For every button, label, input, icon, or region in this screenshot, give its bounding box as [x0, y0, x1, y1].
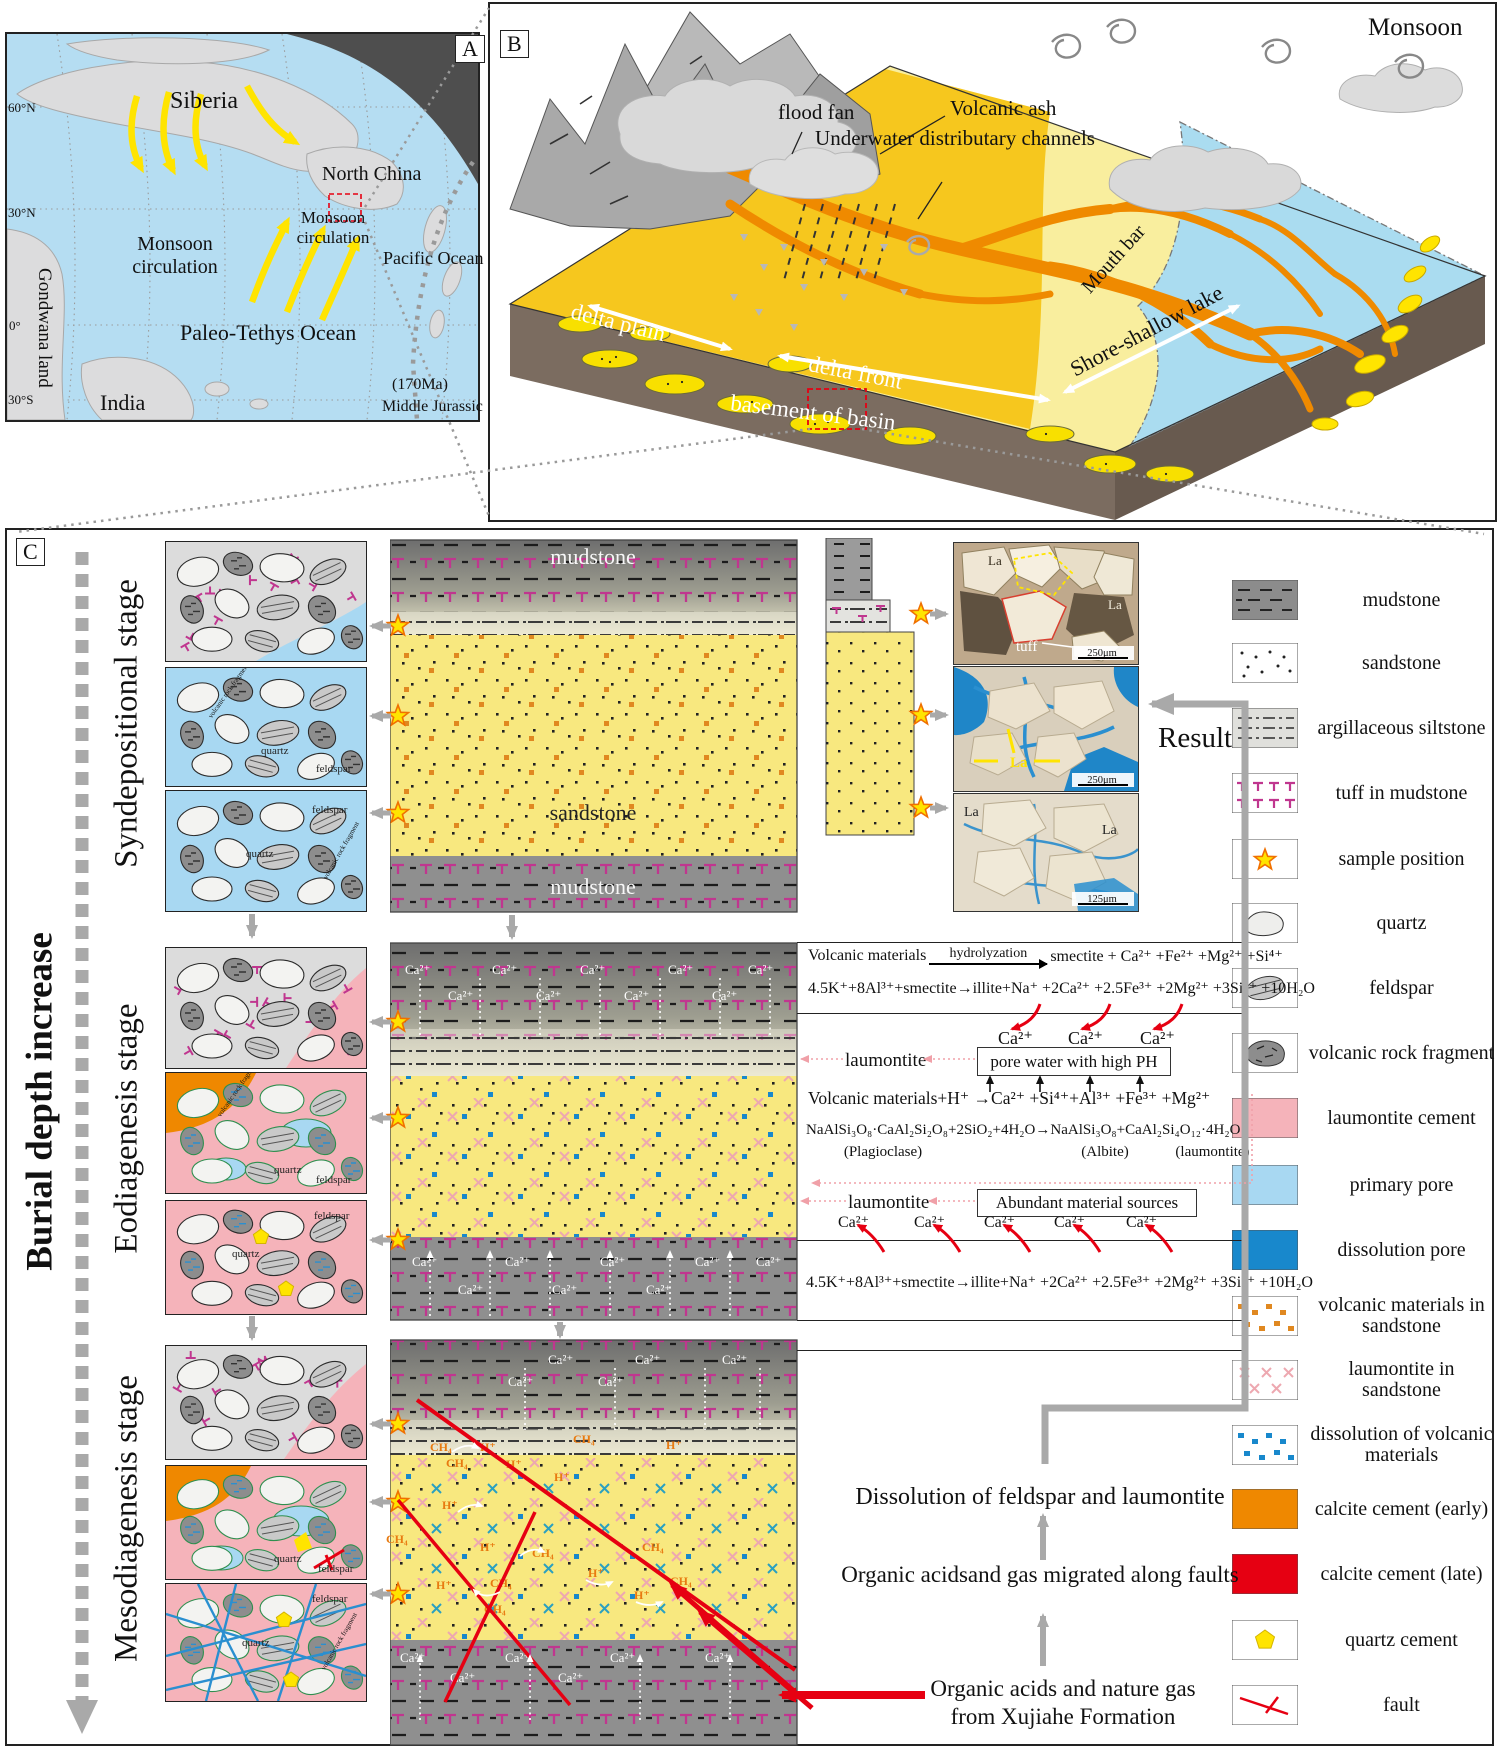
legend-row-dissolution-of-volcanic-materials: dissolution of volcanic materials — [1232, 1422, 1495, 1468]
divider — [797, 1240, 1245, 1241]
column-mesodiagenesis — [390, 1340, 797, 1745]
label-channels: Underwater distributary channels — [800, 126, 1110, 151]
legend-row-sample-position: sample position — [1232, 836, 1495, 882]
label-monsoon: Monsoon — [1368, 14, 1462, 42]
column-reference-small — [826, 538, 914, 835]
panel-b-tag: B — [500, 30, 529, 58]
label-lat-0: 0° — [9, 318, 21, 334]
legend-row-argillaceous-siltstone: argillaceous siltstone — [1232, 705, 1495, 751]
quartz-label: quartz — [261, 745, 289, 757]
label-gondwana: Gondwana land — [33, 268, 55, 388]
label-period: Middle Jurassic — [382, 398, 483, 416]
delta-block-diagram — [490, 4, 1495, 520]
figure-root: A Siberia North China Monsoon circulatio… — [0, 0, 1499, 1748]
feldspar-label: feldspar — [312, 804, 348, 816]
legend-row-laumontite-in-sandstone: laumontite in sandstone — [1232, 1357, 1495, 1403]
quartz-label: quartz — [232, 1248, 260, 1260]
legend-row-primary-pore: primary pore — [1232, 1162, 1495, 1208]
txt-organic-1: Organic acids and nature gas — [898, 1676, 1228, 1702]
eq-illite-1: 4.5K⁺+8Al³⁺+smectite→illite+Na⁺ +2Ca²⁺ +… — [808, 978, 1315, 998]
column-eodiagenesis — [390, 943, 797, 1320]
label-lat-30s: 30°S — [8, 392, 33, 408]
column-syndepositional — [390, 540, 797, 912]
divider — [797, 1320, 1245, 1321]
legend-row-tuff-in-mudstone: tuff in mudstone — [1232, 770, 1495, 816]
col1-mudstone-top: mudstone — [443, 544, 743, 570]
micrograph-syn-2: volcanic rock fragment quartz feldspar — [165, 667, 367, 787]
ca-ion-label: Ca²⁺ — [1054, 1212, 1085, 1232]
photo-laumontite-dissolution: La 250μm — [953, 666, 1139, 792]
micrograph-eo-1 — [165, 947, 367, 1069]
feldspar-label: feldspar — [316, 1174, 352, 1186]
eq-illite-2: 4.5K⁺+8Al³⁺+smectite→illite+Na⁺ +2Ca²⁺ +… — [806, 1272, 1313, 1292]
ca-ion-label: Ca²⁺ — [914, 1212, 945, 1232]
label-volcanic-ash: Volcanic ash — [950, 96, 1056, 121]
divider — [797, 1013, 1245, 1014]
legend-row-sandstone: sandstone — [1232, 640, 1495, 686]
micrograph-meso-2: quartz feldspar — [165, 1465, 367, 1580]
laumontite-label-2: laumontite — [848, 1192, 929, 1214]
micrograph-eo-2: volcanic rock fragment quartz feldspar — [165, 1072, 367, 1194]
panel-a-map — [5, 32, 480, 422]
la-label: La — [1010, 755, 1028, 771]
la-label: La — [1108, 597, 1122, 612]
micrograph-syn-3: feldspar quartz volcanic rock fragment — [165, 790, 367, 912]
legend-row-laumontite-cement: laumontite cement — [1232, 1095, 1495, 1141]
quartz-label: quartz — [274, 1553, 302, 1565]
photo-laumontite-pores: La La 125μm — [953, 793, 1139, 912]
label-monsoon-east: Monsoon circulation — [278, 208, 388, 248]
la-label: La — [1102, 823, 1118, 838]
micrograph-meso-3: feldspar quartz volcanic rock fragment — [165, 1583, 367, 1702]
ca-ion-label: Ca²⁺ — [1140, 1028, 1175, 1049]
ca-ion-label: Ca²⁺ — [1068, 1028, 1103, 1049]
txt-organic-2: from Xujiahe Formation — [898, 1704, 1228, 1730]
label-monsoon-west: Monsoon circulation — [100, 233, 250, 279]
la-label: La — [964, 805, 980, 820]
legend-row-quartz-cement: quartz cement — [1232, 1617, 1495, 1663]
panel-b-block-diagram — [488, 2, 1497, 522]
stage-mesodiagenesis: Mesodiagenesis stage — [109, 1329, 146, 1709]
feldspar-label: feldspar — [318, 1563, 354, 1575]
stage-eodiagenesis: Eodiagenesis stage — [109, 949, 146, 1309]
legend-row-calcite-cement-early: calcite cement (early) — [1232, 1486, 1495, 1532]
tuff-label: tuff — [1016, 639, 1037, 655]
legend-row-dissolution-pore: dissolution pore — [1232, 1227, 1495, 1273]
label-north-china: North China — [322, 163, 421, 186]
divider — [797, 1350, 1245, 1351]
label-pacific-ocean: Pacific Ocean — [383, 248, 483, 269]
label-india: India — [100, 390, 145, 416]
txt-dissolution: Dissolution of feldspar and laumontite — [820, 1484, 1260, 1511]
micrograph-syn-1 — [165, 541, 367, 662]
legend-row-fault: fault — [1232, 1682, 1495, 1728]
micrograph-meso-1 — [165, 1345, 367, 1460]
panel-c-tag: C — [16, 538, 45, 566]
paleogeographic-map — [7, 34, 478, 420]
feldspar-label: feldspar — [316, 763, 352, 775]
ca-ion-label: Ca²⁺ — [998, 1028, 1033, 1049]
legend-row-mudstone: mudstone — [1232, 577, 1495, 623]
quartz-label: quartz — [274, 1164, 302, 1176]
ca-ion-label: Ca²⁺ — [984, 1212, 1015, 1232]
quartz-label: quartz — [246, 848, 274, 860]
eq-plagioclase: NaAlSi₃O₈·CaAl₂Si₂O₈+2SiO₂+4H₂O→NaAlSi₃O… — [806, 1122, 1240, 1139]
lbl-laumontite: (laumontite) — [1145, 1144, 1280, 1161]
label-lat-30n: 30°N — [8, 205, 36, 221]
quartz-label: quartz — [242, 1637, 270, 1649]
panel-a-tag: A — [455, 35, 485, 63]
micrograph-eo-3: quartz feldspar — [165, 1200, 367, 1315]
label-age: (170Ma) — [392, 376, 448, 394]
result-label: Result — [1158, 722, 1232, 755]
pore-water-box: pore water with high PH — [977, 1047, 1171, 1076]
burial-depth-axis: Burial depth increase — [19, 822, 62, 1382]
photo-tuff-thin-section: La La tuff 250μm — [953, 542, 1139, 665]
legend-row-volcanic-materials-in-sandstone: volcanic materials in sandstone — [1232, 1293, 1495, 1339]
legend-row-volcanic-rock-fragment: volcanic rock fragment — [1232, 1030, 1495, 1076]
legend-row-quartz: quartz — [1232, 900, 1495, 946]
feldspar-label: feldspar — [312, 1593, 348, 1605]
eq-hydrolyzation: Volcanic materials hydrolyzation smectit… — [808, 946, 1283, 966]
la-label: La — [988, 553, 1002, 568]
stage-syndepositional: Syndepositional stage — [109, 539, 146, 909]
txt-migration: Organic acidsand gas migrated along faul… — [800, 1562, 1280, 1588]
laumontite-label-1: laumontite — [845, 1050, 926, 1072]
col1-sandstone: sandstone — [443, 800, 743, 826]
label-flood-fan: flood fan — [778, 100, 854, 125]
ca-ion-label: Ca²⁺ — [1126, 1212, 1157, 1232]
label-paleo-tethys: Paleo-Tethys Ocean — [180, 320, 356, 346]
ca-ion-label: Ca²⁺ — [838, 1212, 869, 1232]
divider — [797, 942, 1245, 943]
label-lat-60n: 60°N — [8, 100, 36, 116]
feldspar-label: feldspar — [314, 1210, 350, 1222]
label-siberia: Siberia — [170, 88, 238, 115]
lbl-plagioclase: (Plagioclase) — [808, 1144, 958, 1161]
col1-mudstone-bottom: mudstone — [443, 874, 743, 900]
eq-volcanic-h: Volcanic materials+H⁺ →Ca²⁺ +Si⁴⁺+Al³⁺ +… — [808, 1088, 1210, 1109]
